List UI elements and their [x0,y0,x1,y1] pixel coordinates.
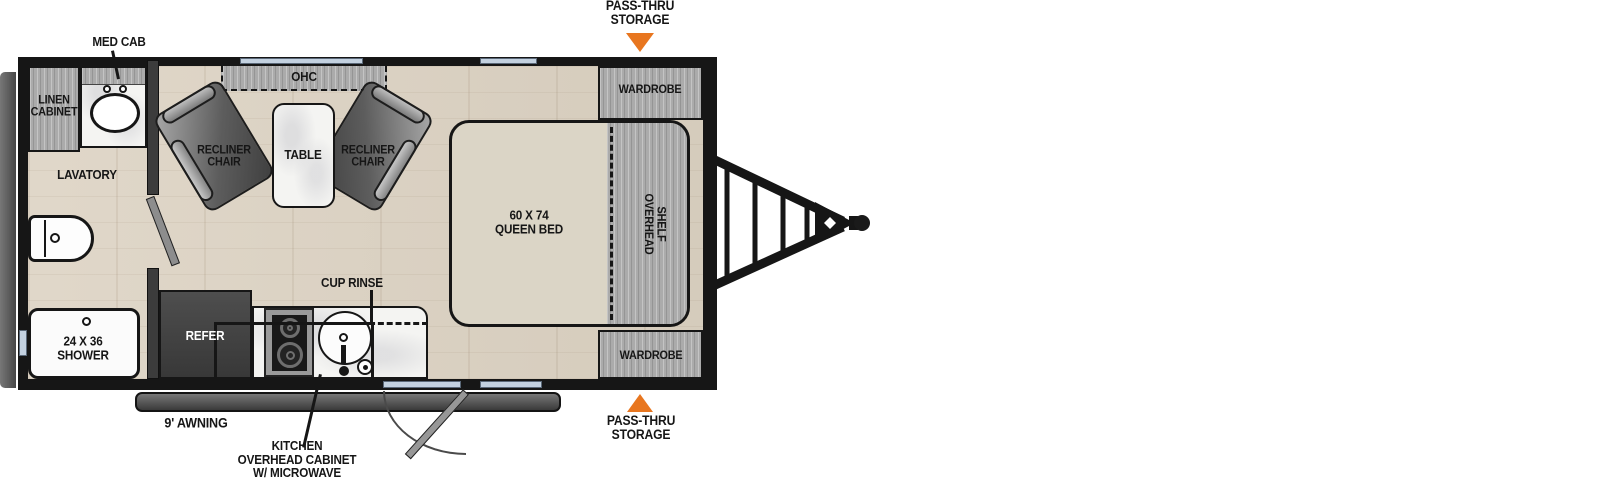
faucet-dot-left [103,85,111,93]
a-frame-hitch [703,140,875,306]
bathroom-wall-lower [147,268,159,379]
faucet-dot-right [119,85,127,93]
med-cab-top [82,68,145,85]
shower-label: 24 X 36 SHOWER [57,334,109,361]
recliner-left-label: RECLINER CHAIR [197,144,251,169]
toilet [28,215,94,262]
window-bottom-center [480,381,542,388]
shower-drain [82,317,91,326]
kitchen-ohc-dashed-edge [272,322,428,325]
queen-bed-label: 60 X 74 QUEEN BED [495,208,563,235]
cup-rinse-pointer [370,290,373,325]
rear-bumper [0,72,16,388]
entry-door-opening [383,381,461,388]
overhead-shelf-label: OVERHEAD SHELF [643,193,668,254]
vanity-sink [90,93,140,133]
pass-thru-arrow-bottom [627,394,653,412]
refer-label: REFER [186,329,225,343]
bed-shelf-divider [610,127,613,320]
lavatory-label: LAVATORY [57,168,117,182]
kitchen-ohc-outline [214,322,374,380]
recliner-right-label: RECLINER CHAIR [341,144,395,169]
linen-cabinet-label: LINEN CABINET [31,94,78,119]
pass-thru-bottom-label: PASS-THRU STORAGE [607,414,675,442]
window-left-shower [19,330,27,356]
med-cab-vanity [80,66,147,148]
floorplan-canvas: MED CAB LINEN CABINET LAVATORY 24 X 36 S… [0,0,1600,484]
wardrobe-bottom-label: WARDROBE [620,349,683,361]
wardrobe-top-label: WARDROBE [619,83,682,95]
toilet-tank-line [44,220,46,257]
kitchen-cabinet-label: KITCHEN OVERHEAD CABINET W/ MICROWAVE [238,439,357,480]
ohc-label: OHC [291,70,316,84]
pass-thru-top-label: PASS-THRU STORAGE [606,0,674,27]
awning-bar [135,392,561,412]
window-top-center [480,58,537,64]
cup-rinse-label: CUP RINSE [321,276,383,290]
toilet-flush-button [50,233,60,243]
pass-thru-arrow-top [626,33,654,52]
window-top-left [240,58,363,64]
table-label: TABLE [284,148,321,162]
med-cab-label: MED CAB [92,35,145,49]
awning-label: 9' AWNING [164,416,227,431]
